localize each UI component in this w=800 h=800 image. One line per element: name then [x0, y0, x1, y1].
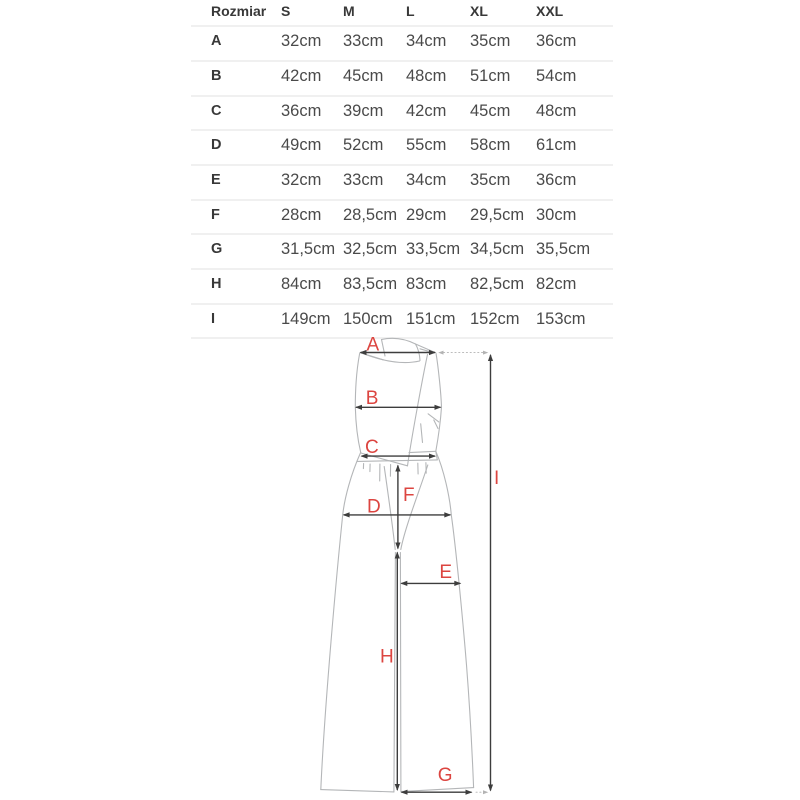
svg-text:D: D — [367, 497, 381, 518]
svg-text:B: B — [366, 388, 379, 409]
svg-text:I: I — [494, 468, 499, 489]
svg-text:H: H — [380, 647, 394, 668]
svg-text:F: F — [403, 485, 415, 506]
svg-text:E: E — [439, 562, 452, 583]
svg-text:G: G — [438, 765, 453, 786]
svg-text:A: A — [367, 335, 380, 356]
svg-text:C: C — [365, 437, 379, 458]
